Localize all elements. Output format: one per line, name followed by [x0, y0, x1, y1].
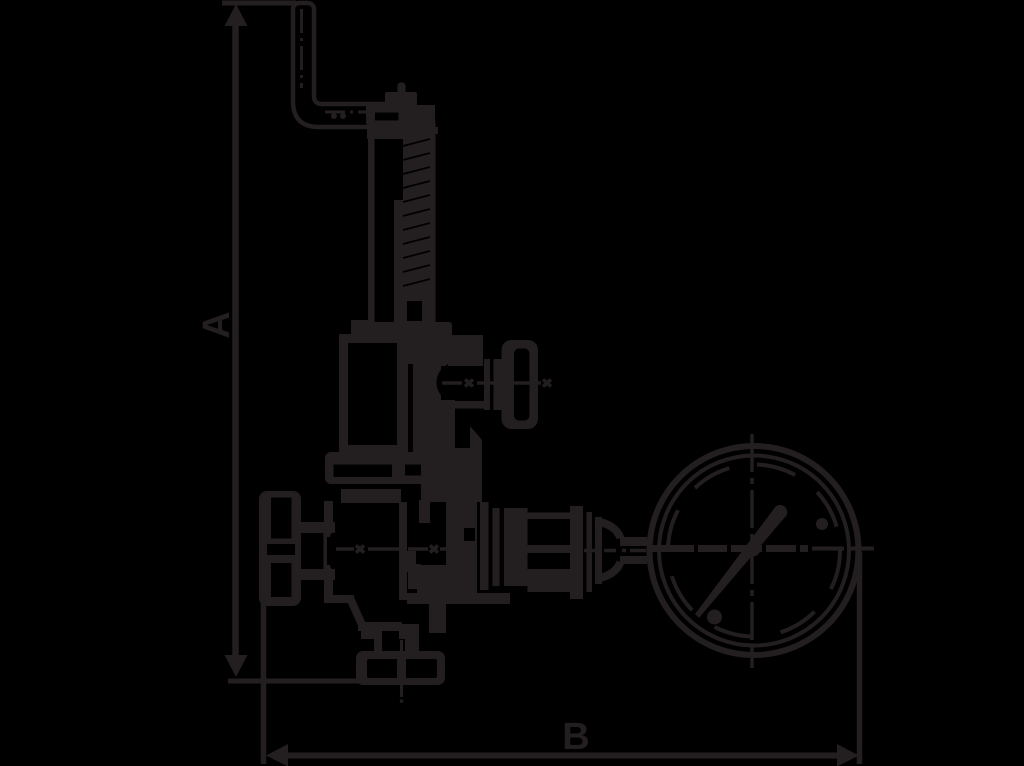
svg-text:B: B [562, 716, 589, 758]
svg-text:A: A [196, 311, 238, 338]
